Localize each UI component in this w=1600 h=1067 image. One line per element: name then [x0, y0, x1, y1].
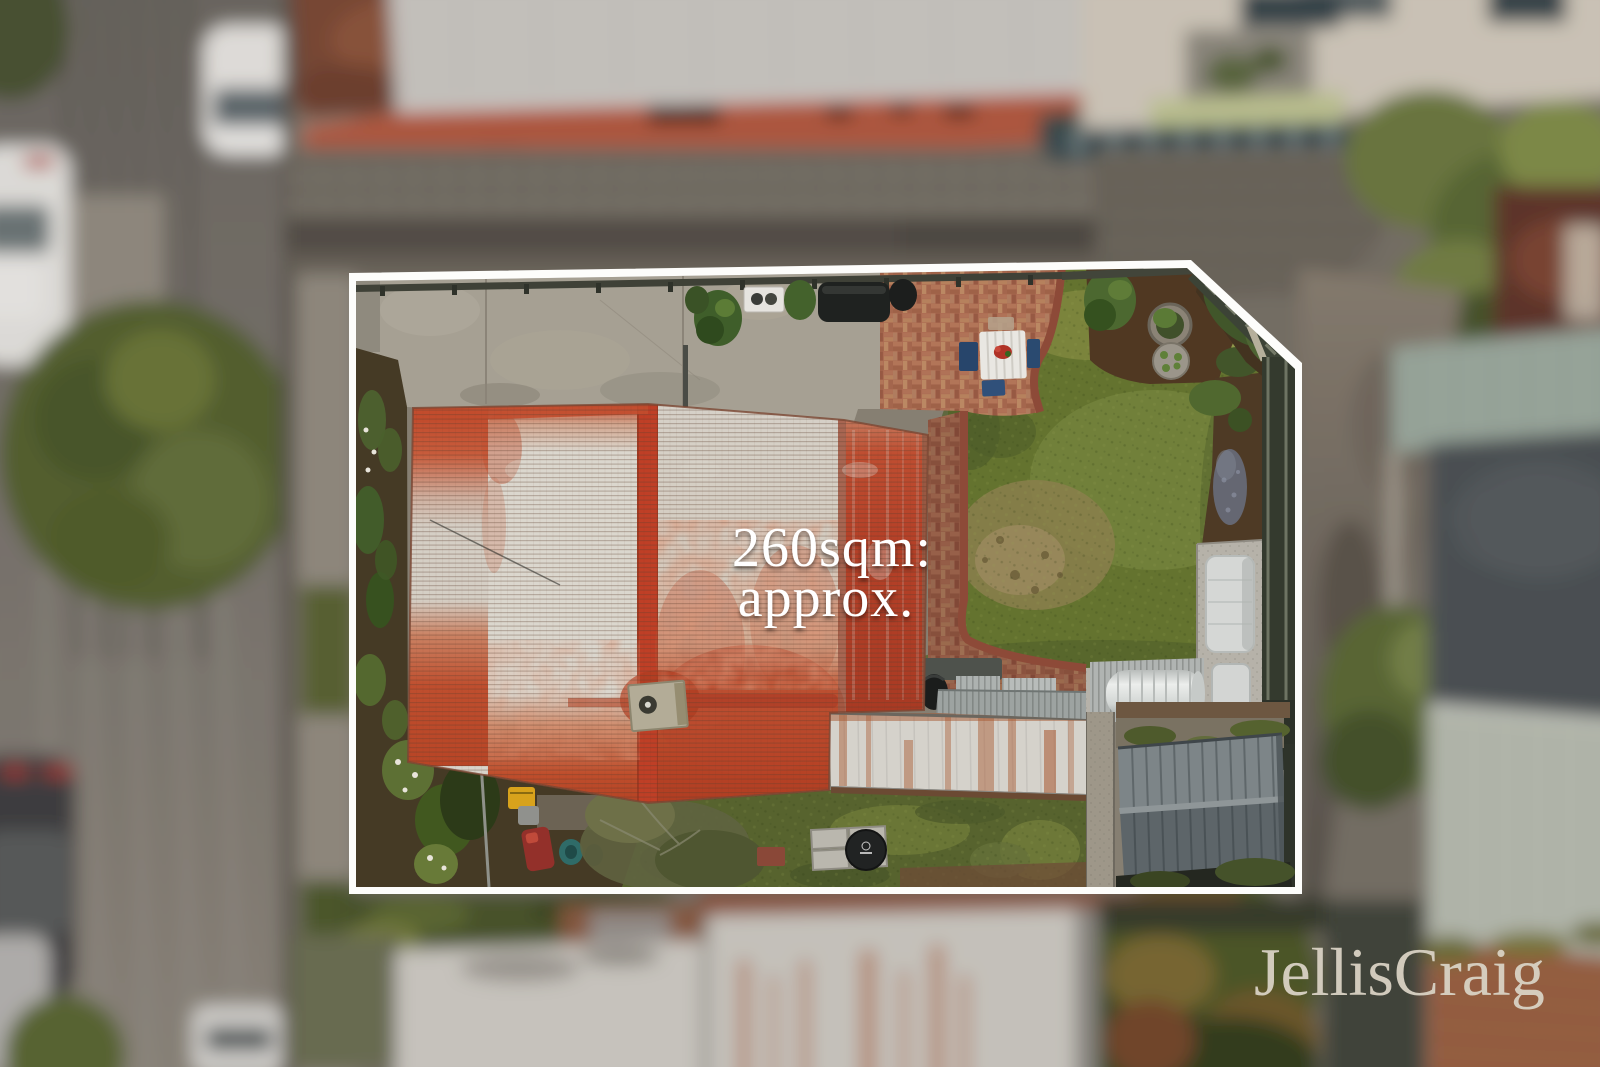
svg-text:JellisCraig: JellisCraig [1254, 934, 1545, 1010]
svg-text:approx.: approx. [738, 567, 915, 629]
